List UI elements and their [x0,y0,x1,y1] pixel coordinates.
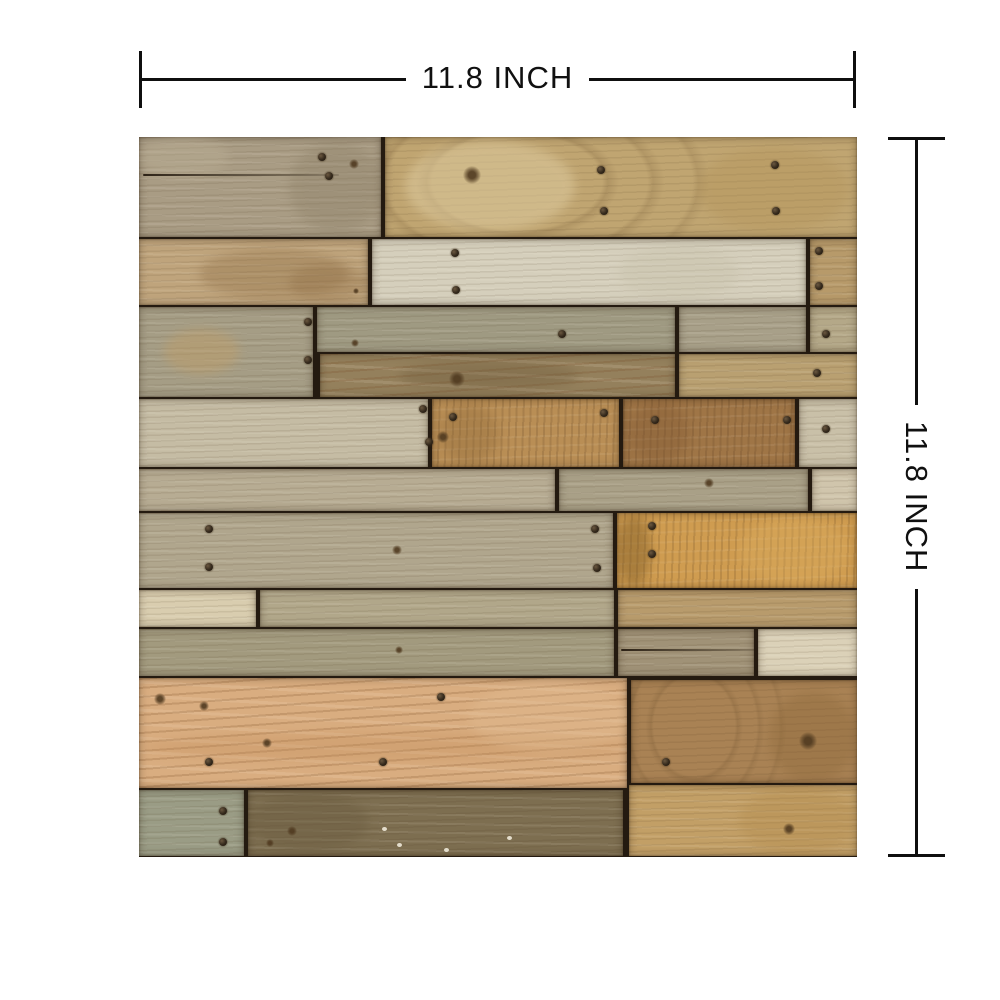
wood-knot [437,431,449,443]
nail-head [822,425,830,433]
wood-crack [143,174,339,176]
wood-plank [248,790,623,856]
wood-tone-patch [617,515,651,586]
paint-speck [444,848,449,852]
nail-head [325,172,333,180]
wood-plank [679,307,806,352]
wood-knot [199,701,209,711]
dimension-label-width: 11.8 INCH [406,62,589,93]
dimension-annotation-width: 11.8 INCH [139,51,856,108]
nail-head [822,330,830,338]
nail-head [451,249,459,257]
wood-tone-patch [164,329,239,374]
wood-tone-patch [139,137,229,177]
wood-plank [623,399,795,467]
wood-knot [449,371,465,387]
nail-head [452,286,460,294]
wood-crack [621,649,755,651]
nail-head [379,758,387,766]
wood-plank [799,399,857,467]
dimension-label-height: 11.8 INCH [901,405,932,588]
wood-knot [799,732,817,750]
wood-plank [139,137,381,237]
nail-head [600,409,608,417]
wood-plank [139,629,614,676]
wood-knot [353,288,359,294]
wood-plank [629,785,857,856]
dimension-line-right-segment [589,78,853,81]
nail-head [219,807,227,815]
wood-knot [154,693,166,705]
dimension-line-left-segment [142,78,406,81]
nail-head [304,318,312,326]
nail-head [771,161,779,169]
wood-plank [139,307,313,397]
wood-knot [287,826,297,836]
wood-tone-patch [739,517,849,585]
nail-head [648,550,656,558]
wood-tone-patch [469,682,627,752]
wood-plank [139,790,244,856]
nail-head [318,153,326,161]
wood-knot [395,646,403,654]
dimension-line-bottom-segment [915,589,918,854]
nail-head [813,369,821,377]
product-dimension-image: 11.8 INCH 11.8 INCH [0,0,1000,1000]
wood-tone-patch [619,245,739,300]
nail-head [437,693,445,701]
nail-head [600,207,608,215]
dimension-end-tick-right [853,51,856,108]
dimension-annotation-height: 11.8 INCH [888,137,945,857]
nail-head [651,416,659,424]
wood-tone-patch [699,147,849,232]
nail-head [304,356,312,364]
nail-head [205,563,213,571]
wood-plank [758,629,857,676]
wood-plank [260,590,614,627]
wood-plank [139,239,368,305]
nail-head [205,758,213,766]
paint-speck [382,827,387,831]
wood-knot [351,339,359,347]
nail-head [419,405,427,413]
wood-panel-photo [139,137,857,857]
nail-head [219,838,227,846]
wood-plank [139,469,555,511]
nail-head [772,207,780,215]
paint-speck [507,836,512,840]
wood-knot [392,545,402,555]
nail-head [205,525,213,533]
wood-tone-patch [289,264,368,302]
wood-plank [618,590,857,627]
wood-plank [139,678,627,788]
wood-plank [139,590,256,627]
wood-plank [139,399,428,467]
nail-head [815,282,823,290]
nail-head [597,166,605,174]
dimension-line-top-segment [915,140,918,405]
nail-head [558,330,566,338]
wood-plank [631,680,857,783]
wood-knot [463,166,481,184]
wood-plank [385,137,857,237]
wood-plank [810,307,857,352]
wood-plank [618,629,754,676]
wood-plank [812,469,857,511]
nail-head [648,522,656,530]
wood-plank [559,469,808,511]
nail-head [593,564,601,572]
wood-knot [783,823,795,835]
nail-head [783,416,791,424]
wood-knot [349,159,359,169]
nail-head [449,413,457,421]
nail-head [662,758,670,766]
wood-tone-patch [405,141,575,231]
wood-plank [679,354,857,397]
nail-head [425,438,433,446]
nail-head [815,247,823,255]
wood-knot [262,738,272,748]
wood-plank [432,399,619,467]
nail-head [591,525,599,533]
wood-knot [266,839,274,847]
wood-tone-patch [629,403,689,463]
wood-plank [372,239,806,305]
wood-plank [320,354,675,397]
wood-tone-patch [289,142,381,232]
wood-tone-patch [739,787,857,855]
wood-knot [704,478,714,488]
wood-tone-patch [399,361,579,391]
wood-plank [317,307,675,352]
paint-speck [397,843,402,847]
dimension-end-tick-bottom [888,854,945,857]
